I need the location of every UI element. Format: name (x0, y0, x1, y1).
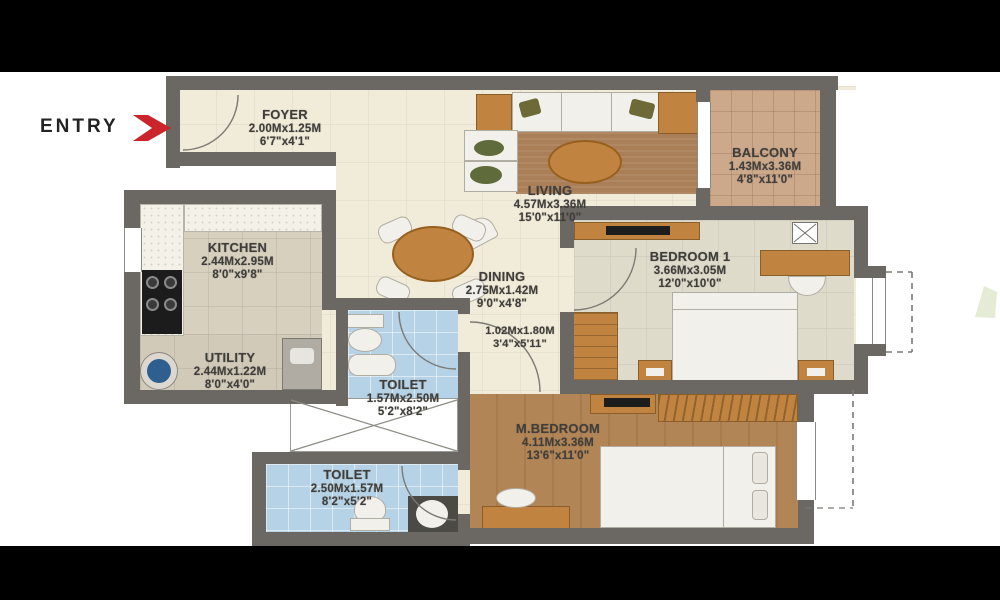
room-name: FOYER (200, 108, 370, 123)
kitchen-counter (184, 204, 322, 232)
nightstand-knob (807, 368, 825, 376)
mbedroom-dresser (482, 506, 570, 530)
room-dim-imperial: 15'0"x11'0" (470, 212, 630, 225)
wall-mbedroom-right (798, 500, 814, 544)
toilet2-cistern (350, 518, 390, 531)
tv (606, 226, 670, 235)
room-dim-imperial: 4'8"x11'0" (703, 174, 827, 187)
entry-label: ENTRY (40, 116, 119, 138)
plant (474, 140, 504, 156)
mbedroom-wardrobe (658, 394, 798, 422)
room-dim-imperial: 8'2"x5'2" (280, 496, 414, 509)
room-dim-metric: 1.02Mx1.80M (458, 325, 582, 338)
balcony-label: BALCONY 1.43Mx3.36M 4'8"x11'0" (703, 146, 827, 187)
room-dim-metric: 1.57Mx2.50M (336, 393, 470, 406)
room-dim-metric: 1.43Mx3.36M (703, 161, 827, 174)
room-dim-metric: 4.57Mx3.36M (470, 199, 630, 212)
foyer-label: FOYER 2.00Mx1.25M 6'7"x4'1" (200, 108, 370, 149)
wall-kitchen-top (124, 190, 336, 204)
ac-unit (792, 222, 818, 244)
wall-foyer-bottom (166, 152, 336, 166)
mbedroom-tv (604, 398, 650, 407)
wall-mbedroom-bottom (470, 528, 812, 544)
wall-bay-cap (854, 344, 886, 356)
kitchen-window (124, 228, 142, 272)
outside-area (836, 90, 858, 206)
room-dim-metric: 2.75Mx1.42M (432, 285, 572, 298)
pillow (752, 452, 768, 484)
letterbox-bottom (0, 546, 1000, 600)
room-name: BEDROOM 1 (610, 250, 770, 265)
room-dim-imperial: 13'6"x11'0" (478, 450, 638, 463)
mbedroom-stool (496, 488, 536, 508)
room-name: BALCONY (703, 146, 827, 161)
bedroom1-bed (672, 292, 798, 384)
room-dim-imperial: 6'7"x4'1" (200, 136, 370, 149)
utility-label: UTILITY 2.44Mx1.22M 8'0"x4'0" (165, 351, 295, 392)
room-name: UTILITY (165, 351, 295, 366)
outside-area (814, 394, 856, 546)
wall-bedrooms-divider (560, 380, 868, 394)
stove-burner (146, 276, 159, 289)
toilet2-label: TOILET 2.50Mx1.57M 8'2"x5'2" (280, 468, 414, 509)
room-name: TOILET (336, 378, 470, 393)
mbedroom-window (796, 422, 816, 500)
room-dim-metric: 2.00Mx1.25M (200, 123, 370, 136)
room-dim-imperial: 5'2"x8'2" (336, 406, 470, 419)
wall-kitchen-left (124, 190, 140, 404)
room-dim-metric: 2.44Mx2.95M (170, 256, 305, 269)
entry-arrow-icon (133, 110, 175, 146)
room-dim-metric: 2.50Mx1.57M (280, 483, 414, 496)
room-name: DINING (432, 270, 572, 285)
room-dim-metric: 4.11Mx3.36M (478, 437, 638, 450)
pillow (752, 490, 768, 520)
room-dim-imperial: 12'0"x10'0" (610, 278, 770, 291)
mbedroom-label: M.BEDROOM 4.11Mx3.36M 13'6"x11'0" (478, 422, 638, 463)
wall-top (166, 76, 838, 90)
stove-burner (146, 298, 159, 311)
room-name: TOILET (280, 468, 414, 483)
living-label: LIVING 4.57Mx3.36M 15'0"x11'0" (470, 184, 630, 225)
room-dim-imperial: 8'0"x4'0" (165, 379, 295, 392)
watermark-leaf (975, 286, 997, 318)
outside-area (166, 404, 252, 546)
wall-toilet2-top (252, 452, 458, 464)
outside-area (252, 404, 290, 452)
dining-label: DINING 2.75Mx1.42M 9'0"x4'8" (432, 270, 572, 311)
passage-dim-label: 1.02Mx1.80M 3'4"x5'11" (458, 325, 582, 350)
side-table (476, 94, 512, 132)
kitchen-label: KITCHEN 2.44Mx2.95M 8'0"x9'8" (170, 241, 305, 282)
room-dim-imperial: 9'0"x4'8" (432, 298, 572, 311)
bedroom1-desk (760, 250, 850, 276)
toilet1-label: TOILET 1.57Mx2.50M 5'2"x8'2" (336, 378, 470, 419)
room-dim-metric: 2.44Mx1.22M (165, 366, 295, 379)
floor-plan-image: FOYER 2.00Mx1.25M 6'7"x4'1" KITCHEN 2.44… (0, 0, 1000, 600)
side-table (658, 92, 698, 134)
room-name: M.BEDROOM (478, 422, 638, 437)
wall-balcony-divider (696, 188, 710, 206)
room-name: LIVING (470, 184, 630, 199)
toilet1-cistern (344, 314, 384, 328)
letterbox-top (0, 0, 1000, 72)
coffee-table (548, 140, 622, 184)
wall-balcony-divider (696, 90, 710, 102)
toilet1-basin (348, 354, 396, 376)
toilet1-wc (348, 328, 382, 352)
room-dim-metric: 3.66Mx3.05M (610, 265, 770, 278)
bedroom1-bay-window (872, 278, 886, 344)
room-name: KITCHEN (170, 241, 305, 256)
wall-toilet2-bottom (252, 532, 470, 546)
outside-area (178, 166, 336, 190)
plant (470, 166, 502, 184)
stove-burner (164, 298, 177, 311)
bedroom1-label: BEDROOM 1 3.66Mx3.05M 12'0"x10'0" (610, 250, 770, 291)
room-dim-imperial: 8'0"x9'8" (170, 269, 305, 282)
wall-bay-cap (854, 266, 886, 278)
room-dim-imperial: 3'4"x5'11" (458, 338, 582, 351)
wall-utility-bottom (124, 390, 338, 404)
nightstand-knob (646, 368, 664, 376)
wall-kitchen-living (322, 190, 336, 310)
toilet2-basin (416, 500, 448, 528)
